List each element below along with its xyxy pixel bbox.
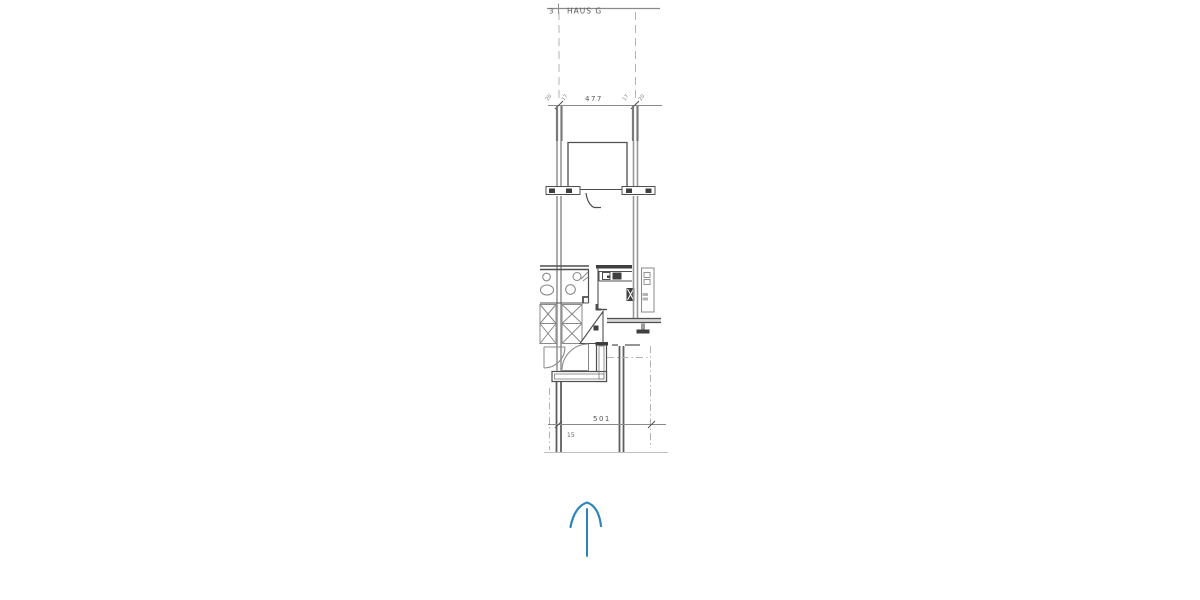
door-swing-arc <box>586 193 601 208</box>
title-block: 3 HAUS G <box>547 4 660 16</box>
door-leaf-triangle <box>580 312 603 344</box>
door-swing-arc <box>544 347 565 368</box>
balcony <box>568 143 627 189</box>
service-shaft <box>642 268 655 312</box>
bathroom <box>540 266 589 303</box>
sink-fixture <box>573 273 581 281</box>
shower-drain-fixture <box>566 285 576 295</box>
sink-fixture <box>543 273 551 281</box>
sheet-label: 3 <box>549 8 553 16</box>
dim-tick-l2: 17 <box>561 93 570 102</box>
balcony-outline <box>568 143 627 189</box>
door-swing-fans <box>544 344 589 371</box>
bottom-dimension: 501 15 <box>548 415 666 439</box>
wall-cap <box>596 342 609 346</box>
duct-symbol <box>644 273 650 278</box>
toilet-fixture <box>541 285 554 295</box>
duct-symbol <box>644 280 650 285</box>
floorplan-drawing: 3 HAUS G 477 20 17 17 20 <box>0 0 1200 600</box>
structural-columns <box>557 106 638 141</box>
north-arrow-icon <box>571 503 602 557</box>
door-swing-arc <box>562 344 589 371</box>
dim-value-bottom: 501 <box>593 415 611 423</box>
dim-offset-label: 15 <box>567 432 575 439</box>
entry-door <box>580 310 607 344</box>
shaft-annotation-mark <box>643 293 649 296</box>
facade-wall-bands <box>546 187 655 195</box>
floorplan-scan-page: 3 HAUS G 477 20 17 17 20 <box>0 0 1200 600</box>
lower-kitchen-wall <box>607 319 661 334</box>
kitchen-wall <box>596 265 632 269</box>
balcony-door <box>586 193 601 208</box>
axis-guide-lines <box>559 12 636 103</box>
shaft-annotation-mark <box>643 298 649 301</box>
dim-tick-r2: 20 <box>638 93 647 102</box>
wall-cap <box>637 330 650 334</box>
appliance-symbol <box>613 273 622 280</box>
dim-tick-r1: 17 <box>622 93 631 102</box>
door-hinge-marker <box>594 326 599 331</box>
dim-tick-l1: 20 <box>545 93 554 102</box>
dim-value-top: 477 <box>585 95 603 103</box>
plan-title: HAUS G <box>567 7 602 16</box>
corner-detail <box>583 297 589 303</box>
corner-detail <box>597 304 602 310</box>
